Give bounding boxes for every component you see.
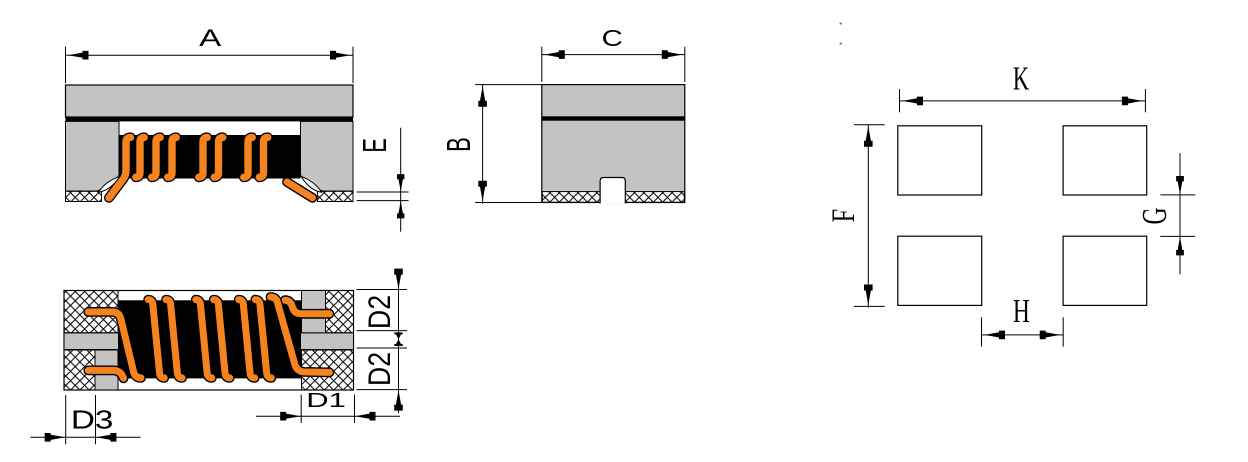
svg-text:K: K xyxy=(1013,60,1030,97)
svg-text:D2: D2 xyxy=(363,295,397,329)
svg-text:F: F xyxy=(826,209,862,222)
svg-text:E: E xyxy=(357,138,394,152)
svg-text:A: A xyxy=(199,25,222,52)
svg-text:B: B xyxy=(441,137,477,152)
svg-text:D3: D3 xyxy=(71,406,114,435)
svg-text:G: G xyxy=(1135,207,1174,224)
svg-text:H: H xyxy=(1013,293,1030,330)
svg-text:C: C xyxy=(602,25,623,51)
svg-text:D2: D2 xyxy=(363,352,397,386)
svg-text:D1: D1 xyxy=(306,389,346,412)
